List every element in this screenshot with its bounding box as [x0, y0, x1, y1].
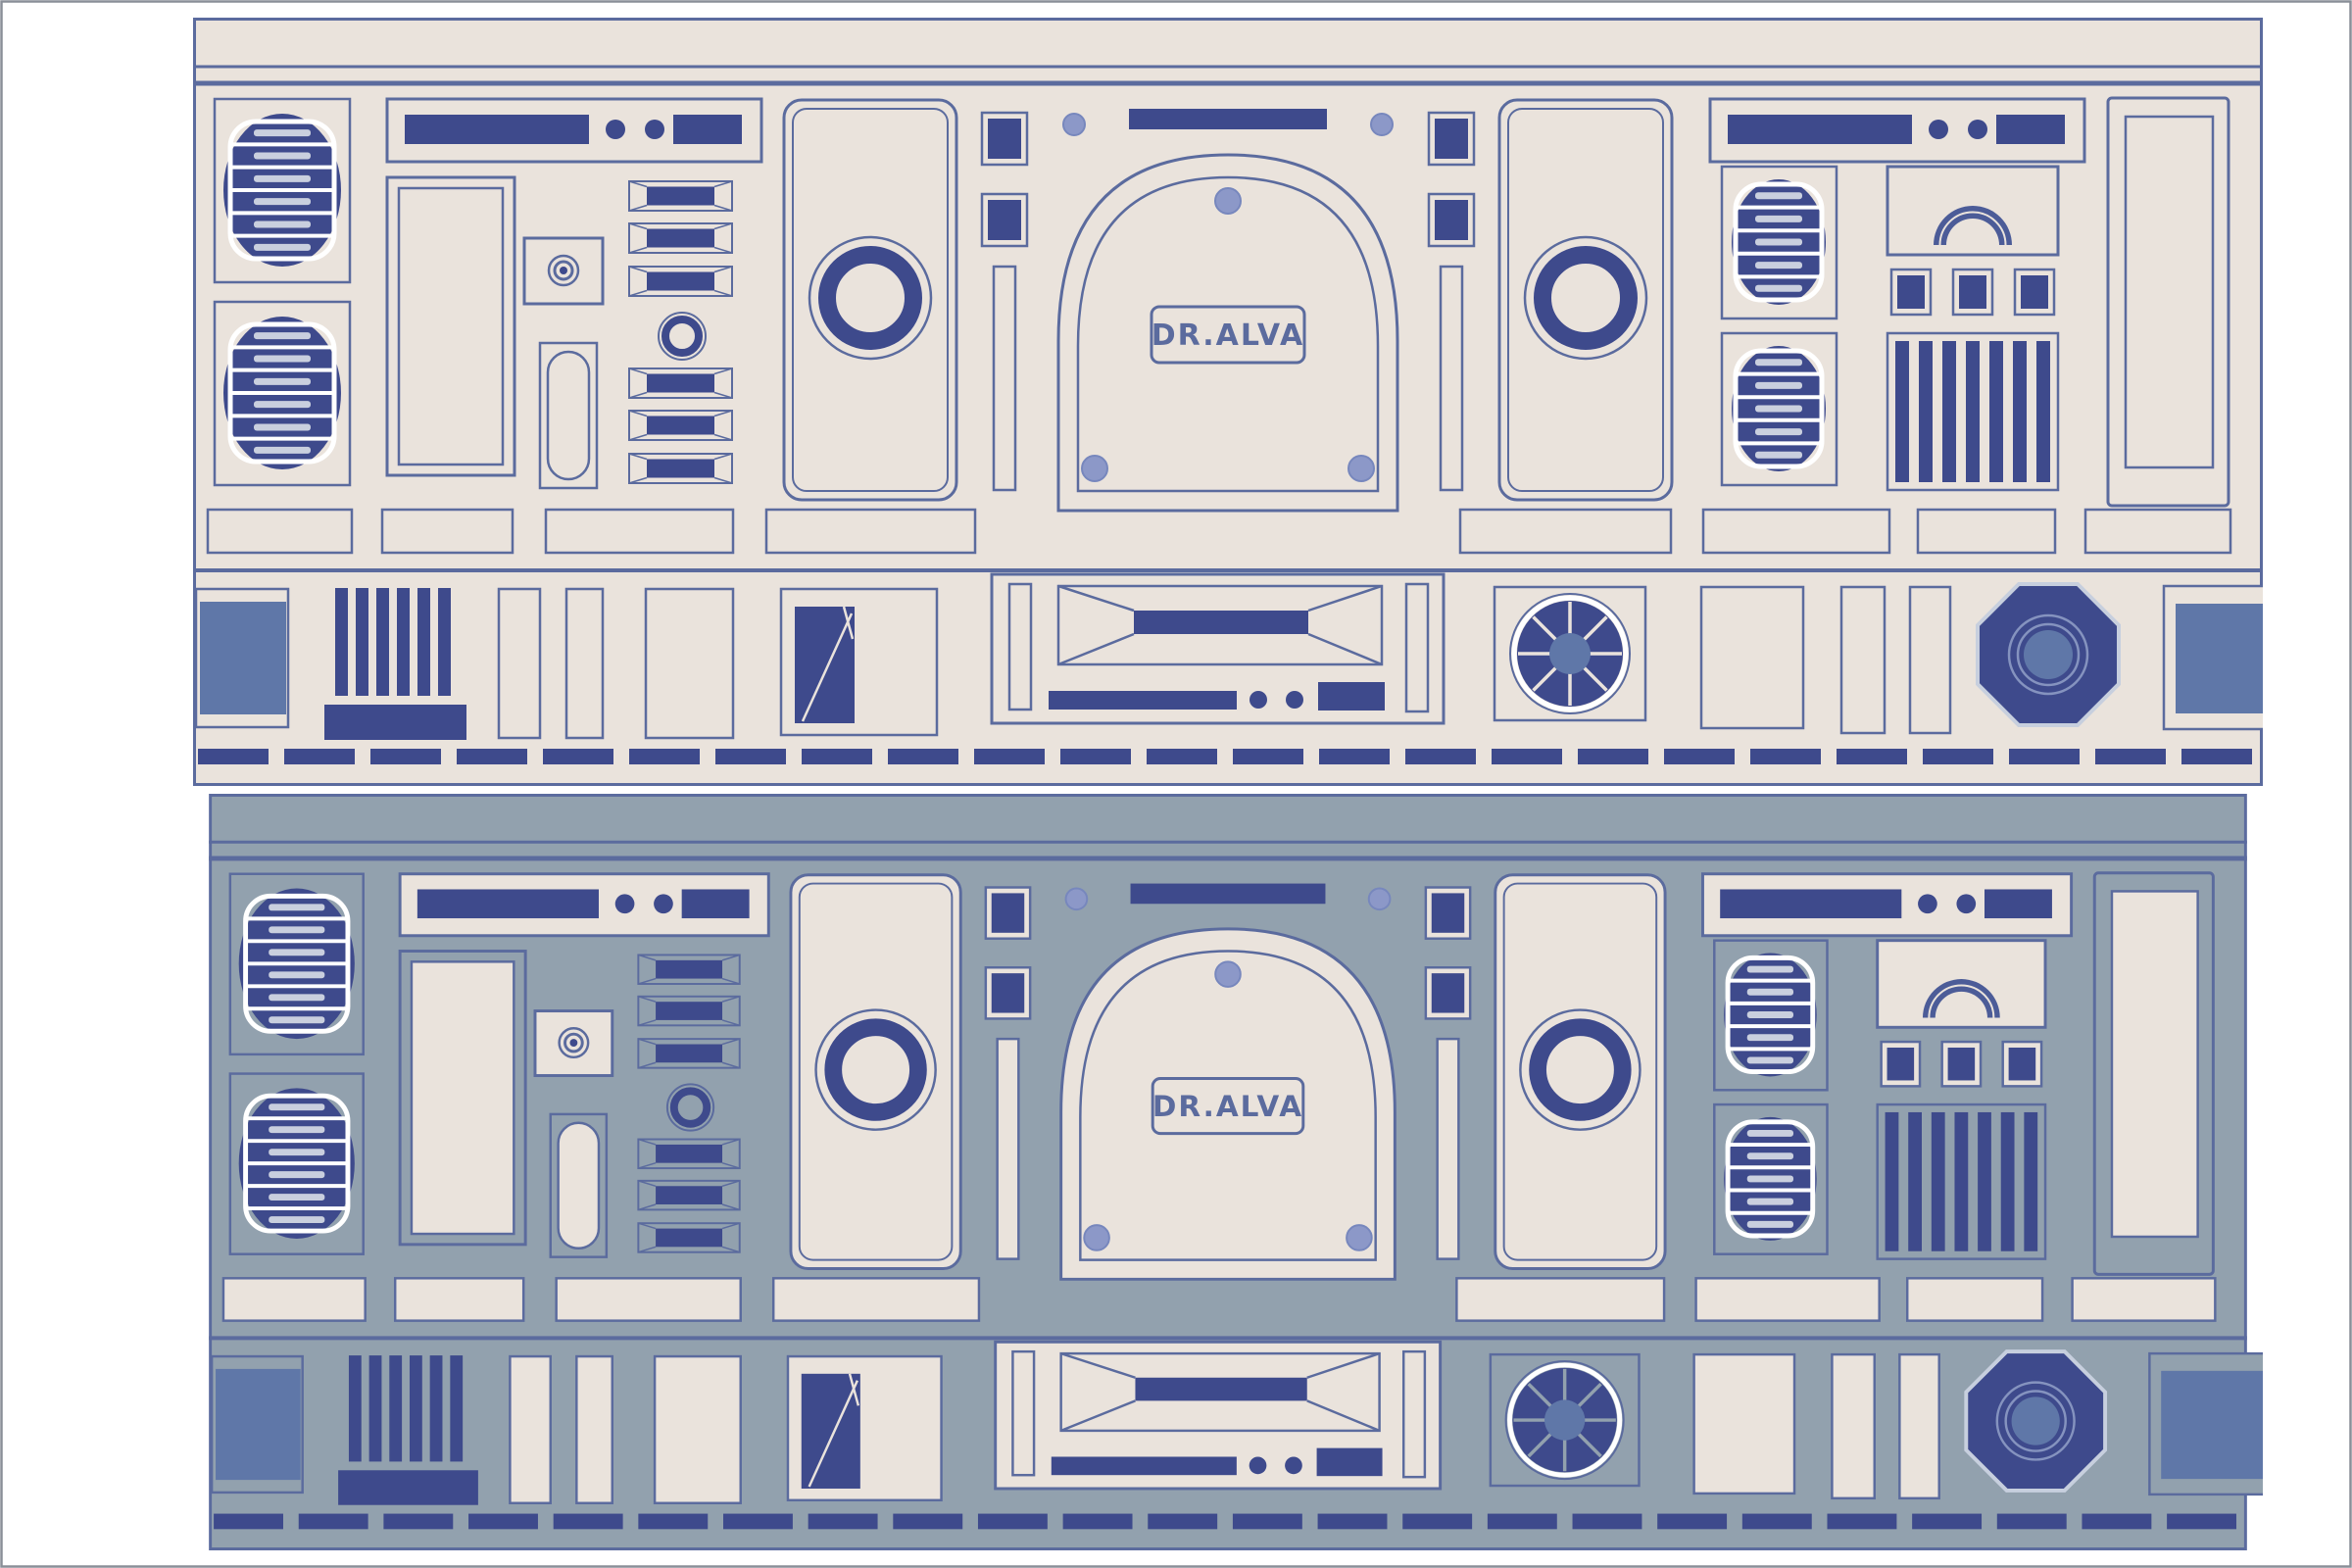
droid-panel-top [193, 20, 2280, 785]
droid-panel-artwork: DR.ALVA [0, 0, 2352, 1568]
artwork-canvas: DR.ALVA [0, 0, 2352, 1568]
droid-panel-bottom [209, 795, 2264, 1548]
